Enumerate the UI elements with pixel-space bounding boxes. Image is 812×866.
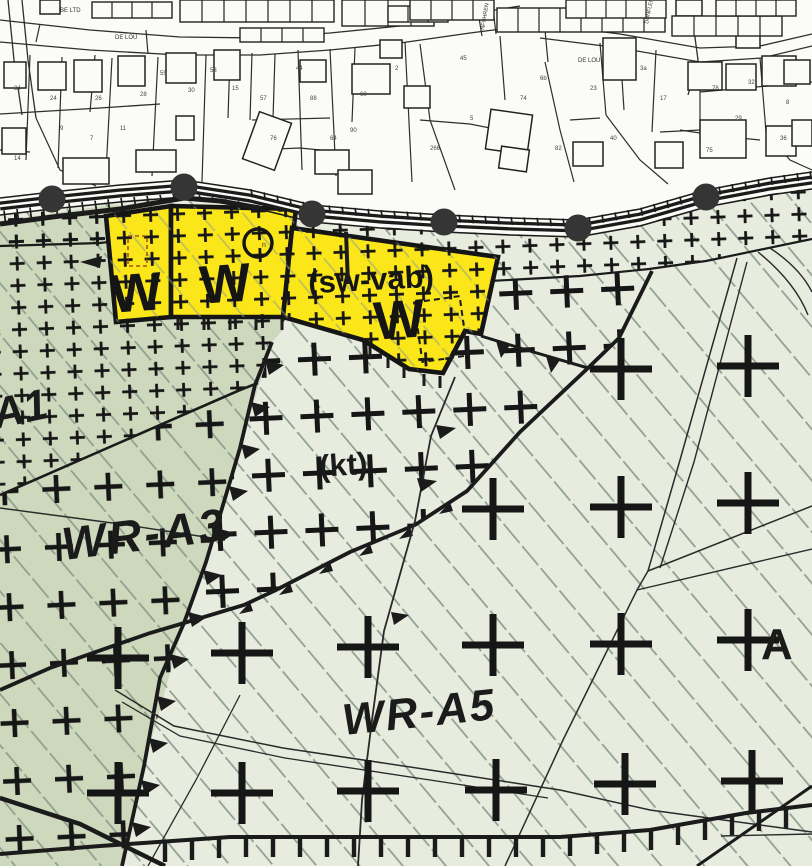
svg-text:11: 11 [120, 126, 127, 132]
svg-text:W: W [109, 261, 164, 324]
svg-text:17: 17 [660, 96, 667, 102]
svg-text:29: 29 [735, 116, 742, 122]
svg-text:24: 24 [50, 96, 57, 102]
svg-text:(sw-vab): (sw-vab) [307, 259, 434, 301]
svg-text:A: A [761, 620, 793, 669]
svg-text:30: 30 [188, 88, 195, 94]
svg-text:26: 26 [95, 96, 102, 102]
svg-text:90: 90 [350, 128, 357, 134]
svg-text:BE LTD: BE LTD [60, 8, 81, 14]
svg-text:(kt): (kt) [318, 446, 369, 484]
svg-text:14: 14 [14, 156, 21, 162]
svg-text:55: 55 [160, 71, 167, 77]
svg-text:74: 74 [520, 96, 527, 102]
svg-text:15: 15 [232, 86, 239, 92]
svg-text:36: 36 [780, 136, 787, 142]
svg-text:45: 45 [460, 56, 467, 62]
svg-text:75: 75 [706, 148, 713, 154]
svg-text:82: 82 [555, 146, 562, 152]
svg-text:76: 76 [270, 136, 277, 142]
svg-text:6b: 6b [540, 76, 547, 82]
svg-text:40: 40 [610, 136, 617, 142]
svg-text:23: 23 [590, 86, 597, 92]
svg-text:53: 53 [210, 68, 217, 74]
svg-text:n: n [262, 242, 266, 249]
svg-text:34: 34 [14, 86, 21, 92]
svg-text:28: 28 [140, 92, 147, 98]
svg-text:W: W [198, 252, 253, 315]
svg-text:W: W [372, 288, 427, 351]
svg-text:32: 32 [748, 80, 755, 86]
svg-text:44: 44 [296, 66, 303, 72]
svg-text:78: 78 [712, 86, 719, 92]
svg-text:DE LOU: DE LOU [578, 58, 600, 64]
svg-text:266: 266 [430, 146, 441, 152]
svg-text:64: 64 [330, 136, 337, 142]
svg-text:DE LOU: DE LOU [115, 35, 137, 41]
svg-text:88: 88 [310, 96, 317, 102]
svg-text:57: 57 [260, 96, 267, 102]
svg-text:60: 60 [360, 92, 367, 98]
svg-text:3a: 3a [640, 66, 647, 72]
